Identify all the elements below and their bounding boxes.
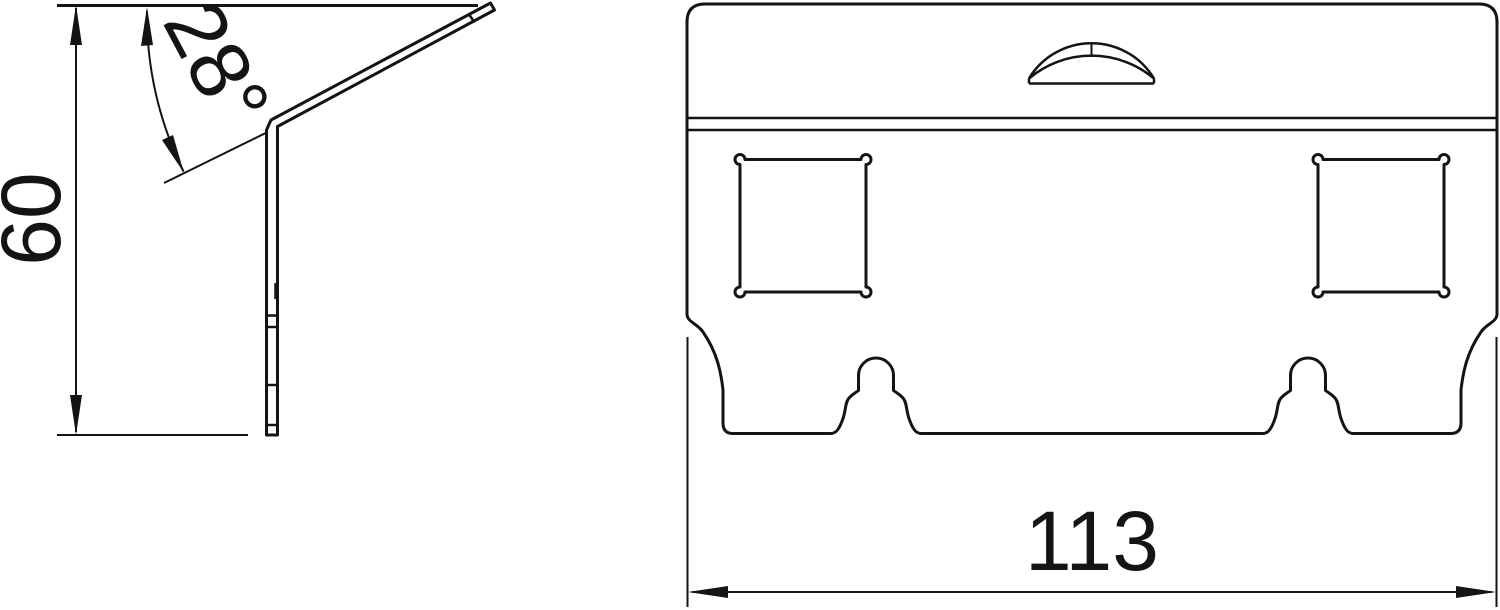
side-profile-outline bbox=[267, 3, 495, 435]
angle-arrow-bottom-icon bbox=[162, 135, 184, 173]
drawing-canvas: 60 28° 113 bbox=[0, 0, 1500, 610]
angle-dimension-label: 28° bbox=[146, 0, 289, 142]
right-cutout bbox=[1313, 155, 1449, 298]
height-arrow-up-icon bbox=[70, 5, 82, 45]
side-view: 60 28° bbox=[0, 0, 495, 435]
front-view: 113 bbox=[687, 4, 1497, 607]
technical-drawing: 60 28° 113 bbox=[0, 0, 1500, 610]
height-dimension-label: 60 bbox=[0, 172, 78, 265]
angle-extension-line bbox=[164, 127, 278, 183]
width-arrow-left-icon bbox=[688, 586, 728, 598]
height-arrow-down-icon bbox=[70, 395, 82, 435]
width-arrow-right-icon bbox=[1456, 586, 1496, 598]
width-dimension-label: 113 bbox=[1025, 494, 1159, 588]
left-cutout bbox=[735, 155, 871, 298]
